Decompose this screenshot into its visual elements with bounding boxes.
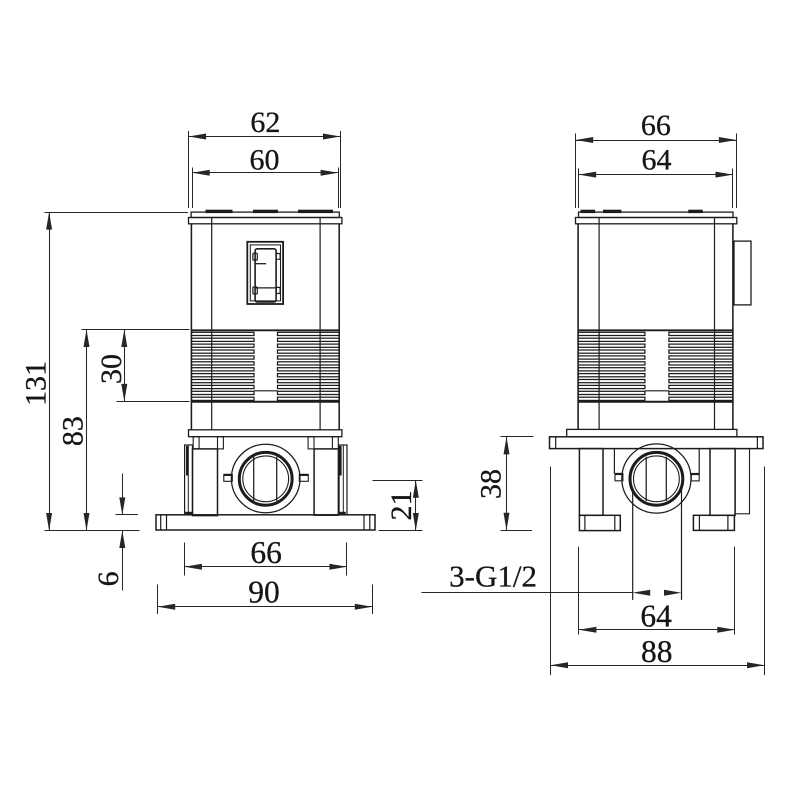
svg-text:38: 38 [475,469,508,499]
svg-text:64: 64 [640,598,672,633]
svg-text:6: 6 [92,571,125,586]
svg-text:131: 131 [19,361,52,406]
svg-text:66: 66 [641,109,671,142]
svg-text:30: 30 [95,354,128,384]
svg-text:90: 90 [248,575,280,610]
svg-text:3-G1/2: 3-G1/2 [449,559,537,594]
svg-text:64: 64 [642,144,672,177]
svg-text:66: 66 [250,535,282,570]
svg-text:21: 21 [385,491,418,521]
svg-text:62: 62 [250,106,280,139]
svg-text:60: 60 [250,143,280,176]
svg-text:88: 88 [641,634,673,669]
svg-text:83: 83 [57,416,90,446]
